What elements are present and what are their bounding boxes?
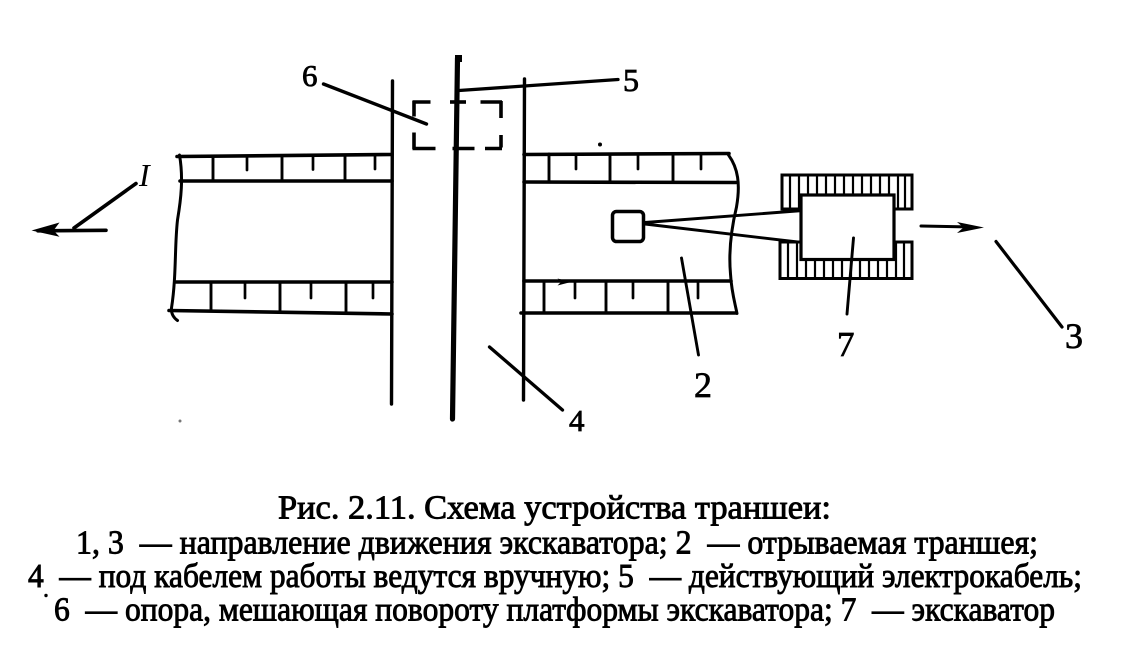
svg-text:1, 3 — направление движения э: 1, 3 — направление движения экскаватора;… — [76, 525, 1038, 562]
svg-text:4: 4 — [569, 403, 585, 438]
svg-text:Рис. 2.11. Схема устройства тр: Рис. 2.11. Схема устройства траншеи: — [278, 490, 831, 527]
svg-text:4 — под кабелем работы ведутс: 4 — под кабелем работы ведутся вручную; … — [28, 558, 1082, 595]
svg-text:I: I — [138, 157, 151, 193]
svg-text:6: 6 — [302, 58, 318, 93]
svg-text:3: 3 — [1065, 316, 1083, 356]
svg-text:7: 7 — [837, 325, 855, 364]
svg-text:5: 5 — [623, 62, 639, 98]
svg-text:6 — опора, мешающая повороту: 6 — опора, мешающая повороту платформы э… — [54, 592, 1055, 629]
svg-text:2: 2 — [694, 365, 712, 405]
